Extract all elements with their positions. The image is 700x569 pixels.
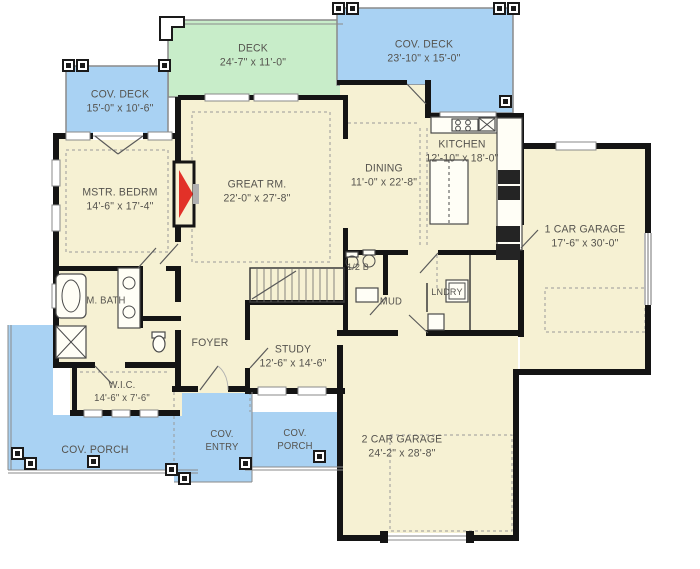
room-label-cov-porch-center: COV. PORCH (276, 427, 313, 453)
mud-appliance (428, 314, 444, 330)
room-label-master-bath: M. BATH (85, 295, 126, 308)
half-bath-toilet (363, 250, 375, 255)
floor-plan-drawing (0, 0, 700, 569)
room-label-cov-entry: COV. ENTRY (205, 428, 240, 454)
garage1-door (644, 233, 652, 305)
room-label-laundry: LNDRY (430, 287, 463, 299)
room-label-half-bath: 1/2 B (346, 262, 369, 274)
room-label-foyer: FOYER (191, 336, 230, 350)
wall-oven (496, 226, 520, 242)
room-label-garage1: 1 CAR GARAGE 17'-6" x 30'-0" (543, 223, 628, 252)
bathtub (56, 274, 86, 318)
refrigerator (498, 170, 520, 184)
room-label-study: STUDY 12'-6" x 14'-6" (258, 343, 329, 372)
garage2-door (387, 533, 467, 543)
mud-bench (356, 288, 378, 302)
fireplace-icon (174, 162, 199, 226)
room-label-wic: W.I.C. 14'-6" x 7'-6" (93, 379, 152, 405)
floor-plan: DECK 24'-7" x 11'-0" COV. DECK 23'-10" x… (0, 0, 700, 569)
room-label-cov-deck-right: COV. DECK 23'-10" x 15'-0" (386, 38, 463, 67)
room-label-cov-porch-left: COV. PORCH (60, 443, 131, 457)
room-label-deck: DECK 24'-7" x 11'-0" (218, 42, 288, 71)
room-label-master: MSTR. BEDRM 14'-6" x 17'-4" (80, 186, 159, 215)
room-label-cov-deck-left: COV. DECK 15'-0" x 10'-6" (85, 88, 156, 117)
room-label-dining: DINING 11'-0" x 22'-8" (349, 162, 419, 191)
room-label-mud: MUD (379, 296, 402, 309)
room-label-great-room: GREAT RM. 22'-0" x 27'-8" (222, 178, 293, 207)
room-label-kitchen: KITCHEN 12'-10" x 18'-0" (424, 138, 501, 167)
room-label-garage2: 2 CAR GARAGE 24'-2" x 28'-8" (360, 433, 445, 462)
